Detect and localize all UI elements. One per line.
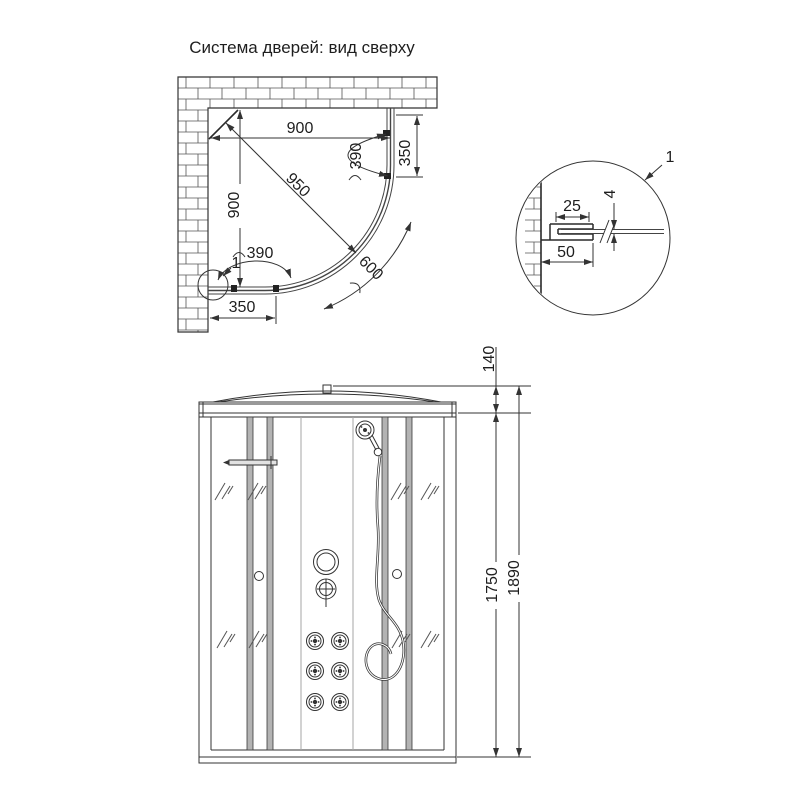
dim-side-right-label: 350 bbox=[397, 140, 414, 167]
detail-profile bbox=[541, 224, 593, 240]
dim-roof-height-label: 140 bbox=[481, 346, 498, 373]
detail-wall bbox=[525, 172, 541, 304]
dim-total-height-label: 1890 bbox=[506, 560, 523, 596]
corner-brace bbox=[209, 110, 238, 139]
dim-width-label: 900 bbox=[287, 120, 314, 137]
dim-door-arc-label: 600 bbox=[355, 253, 386, 284]
arc-symbol bbox=[349, 176, 361, 181]
dim-side-right: 350 bbox=[396, 115, 423, 177]
dim-diagonal: 950 bbox=[226, 123, 356, 253]
left-door-handle bbox=[255, 572, 264, 581]
right-door-handle bbox=[393, 570, 402, 579]
dim-profile-width-label: 25 bbox=[563, 198, 581, 215]
dim-body-height-label: 1750 bbox=[484, 567, 501, 603]
dim-door-right-label: 390 bbox=[348, 143, 365, 170]
detail-leader: 1 bbox=[645, 149, 675, 180]
dim-glass-thickness-label: 4 bbox=[602, 189, 619, 198]
dim-door-bottom-label: 390 bbox=[247, 245, 274, 262]
dim-door-right: 390 bbox=[348, 134, 388, 180]
detail-view: 25 4 50 1 bbox=[516, 149, 675, 315]
control-dial bbox=[314, 550, 339, 575]
dim-height-label: 900 bbox=[226, 192, 243, 219]
faucet-handle bbox=[316, 579, 336, 607]
roof-dome bbox=[213, 385, 441, 402]
dim-wall-offset-label: 50 bbox=[557, 244, 575, 261]
dim-door-bottom: 390 bbox=[218, 245, 291, 280]
dim-wall-offset: 50 bbox=[541, 243, 593, 267]
dim-diagonal-label: 950 bbox=[282, 170, 313, 201]
dim-door-arc: 600 bbox=[324, 222, 411, 309]
roof-knob bbox=[323, 385, 331, 393]
callout-label: 1 bbox=[232, 255, 241, 272]
drawing-canvas: Система дверей: вид сверху 900 bbox=[0, 0, 800, 800]
front-view: 140 1750 1890 bbox=[199, 346, 531, 763]
massage-jets bbox=[307, 633, 349, 711]
technical-drawing: Система дверей: вид сверху 900 bbox=[0, 0, 800, 800]
page-title: Система дверей: вид сверху bbox=[189, 38, 415, 57]
height-dimensions: 140 1750 1890 bbox=[333, 346, 531, 757]
top-view: 900 900 950 390 350 390 bbox=[178, 77, 437, 332]
dim-profile-width: 25 bbox=[556, 198, 589, 222]
detail-callout-label: 1 bbox=[666, 149, 675, 166]
dim-side-bottom: 350 bbox=[210, 296, 276, 324]
dim-side-bottom-label: 350 bbox=[229, 299, 256, 316]
